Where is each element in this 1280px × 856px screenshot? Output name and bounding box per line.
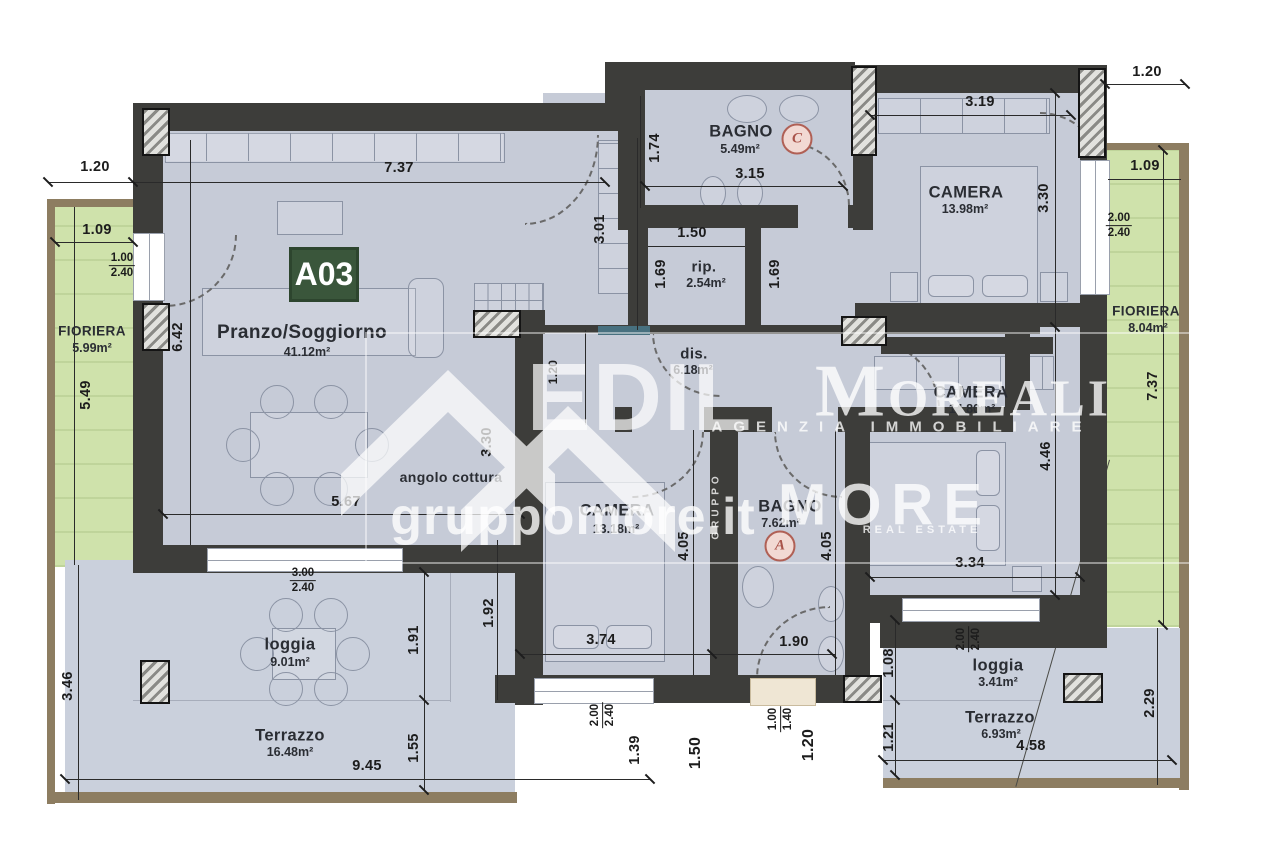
window	[534, 678, 654, 704]
dining-table	[250, 412, 368, 478]
dim-line	[883, 760, 1172, 761]
window	[133, 233, 165, 301]
dim-line	[585, 330, 586, 425]
room-area-terrazzo1: 16.48m²	[267, 745, 314, 759]
dim-fraction: 3.00 2.40	[290, 566, 316, 596]
dim-line	[78, 565, 79, 800]
dim-label: 3.74	[586, 632, 615, 648]
sink	[742, 566, 774, 608]
nightstand	[890, 272, 918, 302]
wall	[845, 407, 870, 703]
pillow	[976, 505, 1000, 551]
room-label-camera1: CAMERA	[929, 184, 1004, 203]
room-label-pranzo: Pranzo/Soggiorno	[217, 322, 387, 344]
kitchen-counter-cells	[165, 133, 503, 161]
dim-label: 1.20	[1132, 64, 1161, 80]
room-label-terrazzo1: Terrazzo	[255, 727, 325, 746]
room-label-loggia2: loggia	[973, 657, 1024, 676]
door-letter-c: C	[782, 124, 813, 155]
dim-label: 2.00	[588, 702, 603, 728]
room-label-rip: rip.	[692, 259, 717, 276]
planter-border	[47, 199, 55, 804]
dim-label: 1.69	[653, 259, 669, 288]
storage-hall-floor	[620, 208, 855, 408]
dim-label: 5.67	[331, 494, 360, 510]
entrance-door	[750, 678, 816, 706]
dim-line	[693, 430, 694, 675]
dim-line	[424, 572, 425, 790]
column-pillar	[142, 303, 170, 351]
room-area-bagno2: 7.62m²	[761, 516, 801, 530]
dim-fraction: 2.00 2.40	[1106, 211, 1132, 241]
door-opening	[772, 407, 838, 432]
room-label-bagno2: BAGNO	[758, 498, 821, 517]
dim-line	[1163, 150, 1164, 625]
column-pillar	[1063, 673, 1103, 703]
dim-fraction: 2.00 2.40	[588, 702, 618, 728]
room-label-angolo: angolo cottura	[400, 469, 503, 485]
nightstand	[1040, 272, 1068, 302]
dim-label: 4.46	[1038, 441, 1054, 470]
wall	[745, 228, 761, 330]
patio-chair	[314, 672, 348, 706]
dim-label: 3.15	[735, 166, 764, 182]
door-opening	[845, 340, 870, 404]
dim-line	[190, 140, 191, 545]
room-label-fioriera1: FIORIERA	[58, 324, 126, 339]
dim-label: 1.55	[406, 733, 422, 762]
dim-label: 2.40	[109, 267, 135, 281]
dim-label: 1.20	[546, 360, 560, 385]
dim-line	[870, 115, 1071, 116]
room-area-bagno1: 5.49m²	[720, 142, 760, 156]
room-label-camera2: CAMERA	[934, 384, 1009, 403]
dim-line	[648, 246, 745, 247]
dim-label: 1.69	[767, 259, 783, 288]
patio-chair	[314, 598, 348, 632]
pillow	[928, 275, 974, 297]
dim-label: 1.09	[1130, 158, 1159, 174]
dim-line	[497, 540, 498, 700]
room-area-camera2: 14.80m²	[949, 402, 996, 416]
pillow	[976, 450, 1000, 496]
dim-line	[895, 620, 896, 775]
room-area-dis: 6.18m²	[673, 363, 713, 377]
wall	[880, 620, 1107, 648]
wall	[855, 65, 1107, 93]
room-area-terrazzo2: 6.93m²	[981, 727, 1021, 741]
column-pillar	[142, 108, 170, 156]
dim-label: 3.01	[592, 214, 608, 243]
room-label-terrazzo2: Terrazzo	[965, 709, 1035, 728]
dim-label: 2.29	[1142, 688, 1158, 717]
patio-chair	[336, 637, 370, 671]
dim-line	[637, 138, 638, 330]
room-area-rip: 2.54m²	[686, 276, 726, 290]
terrace-right-floor	[883, 628, 1180, 778]
dim-fraction: 1.00 1.40	[766, 706, 796, 732]
dim-label: 3.30	[1036, 183, 1052, 212]
column-pillar	[843, 675, 882, 703]
room-label-loggia1: loggia	[265, 636, 316, 655]
dim-line	[870, 577, 1080, 578]
glass-strip	[598, 326, 650, 335]
dim-label: 3.30	[479, 427, 495, 456]
dim-label: 2.40	[290, 582, 316, 596]
dim-label: 2.00	[954, 626, 969, 652]
column-pillar	[473, 310, 521, 338]
dim-label: 1.00	[766, 706, 781, 732]
door-letter-a: A	[765, 531, 796, 562]
wall	[710, 430, 738, 678]
dim-label: 9.45	[352, 758, 381, 774]
room-area-pranzo: 41.12m²	[284, 345, 331, 359]
dim-label: 2.40	[1106, 227, 1132, 241]
dim-label: 1.50	[677, 225, 706, 241]
wall	[1005, 330, 1030, 410]
wall	[515, 310, 543, 705]
dim-line	[640, 96, 641, 208]
door-opening	[632, 407, 704, 432]
dim-label: 2.00	[1106, 211, 1132, 226]
column-pillar	[140, 660, 170, 704]
sofa-chaise	[408, 278, 444, 358]
unit-badge: A03	[289, 247, 359, 302]
room-label-fioriera2: FIORIERA	[1112, 304, 1180, 319]
dim-label: 1.08	[881, 648, 897, 677]
column-pillar	[841, 316, 887, 346]
pillow	[982, 275, 1028, 297]
dim-line	[1105, 84, 1185, 85]
dim-line	[65, 779, 650, 780]
dim-label: 5.49	[78, 380, 94, 409]
dim-line	[520, 654, 835, 655]
loggia-outline	[450, 572, 451, 702]
loggia-outline	[883, 700, 1040, 701]
planter-border	[47, 199, 133, 207]
floor-plan: 1.20 7.37 1.09 1.00 2.40 5.49 6.42 5.67 …	[0, 0, 1280, 856]
dim-label: 1.50	[687, 737, 705, 769]
dim-label: 1.09	[82, 222, 111, 238]
patio-chair	[269, 598, 303, 632]
dim-label: 3.00	[290, 566, 316, 581]
dim-label: 4.05	[676, 531, 692, 560]
chair	[260, 385, 294, 419]
dim-label: 1.92	[481, 598, 497, 627]
chair	[260, 472, 294, 506]
dim-label: 1.74	[647, 133, 663, 162]
dim-label: 1.20	[80, 159, 109, 175]
sideboard	[277, 201, 343, 235]
dim-line	[1055, 93, 1056, 595]
room-area-camera3: 13.18m²	[593, 522, 640, 536]
patio-chair	[269, 672, 303, 706]
wall	[855, 303, 1107, 327]
dim-label: 2.40	[970, 626, 984, 652]
dim-label: 1.90	[779, 634, 808, 650]
room-label-dis: dis.	[680, 346, 707, 363]
dim-label: 1.21	[881, 722, 897, 751]
dim-line	[74, 207, 75, 565]
dim-label: 1.40	[782, 706, 796, 732]
room-area-loggia2: 3.41m²	[978, 675, 1018, 689]
dim-label: 1.20	[800, 729, 818, 761]
chair	[355, 428, 389, 462]
dim-line	[163, 514, 520, 515]
sink	[779, 95, 819, 123]
chair	[314, 385, 348, 419]
wall	[133, 103, 605, 131]
chair	[226, 428, 260, 462]
terrace-border	[883, 778, 1189, 788]
dim-label: 1.00	[109, 251, 135, 266]
door-opening	[798, 205, 848, 228]
dim-label: 4.05	[819, 531, 835, 560]
nightstand	[1012, 566, 1042, 592]
dim-label: 7.37	[384, 160, 413, 176]
wall	[605, 62, 855, 90]
room-label-bagno1: BAGNO	[709, 123, 772, 142]
dim-label: 2.40	[604, 702, 618, 728]
dim-label: 3.46	[60, 671, 76, 700]
planter-border	[1107, 143, 1189, 150]
dim-fraction: 1.00 2.40	[109, 251, 135, 281]
dim-line	[55, 242, 133, 243]
sink	[727, 95, 767, 123]
room-area-fioriera2: 8.04m²	[1128, 321, 1168, 335]
room-area-loggia1: 9.01m²	[270, 655, 310, 669]
dim-line	[1108, 179, 1181, 180]
dim-label: 3.19	[965, 94, 994, 110]
room-area-fioriera1: 5.99m²	[72, 341, 112, 355]
planter-border	[1179, 143, 1189, 790]
dim-label: 6.42	[170, 322, 186, 351]
terrace-border	[55, 792, 517, 803]
dim-label: 7.37	[1145, 371, 1161, 400]
room-area-camera1: 13.98m²	[942, 202, 989, 216]
dim-label: 1.39	[627, 735, 643, 764]
dim-line	[835, 430, 836, 675]
dim-label: 1.91	[406, 625, 422, 654]
dim-line	[645, 186, 843, 187]
dim-label: 3.34	[955, 555, 984, 571]
window	[902, 598, 1040, 622]
dim-fraction: 2.00 2.40	[954, 626, 984, 652]
room-label-camera3: CAMERA	[580, 502, 655, 521]
